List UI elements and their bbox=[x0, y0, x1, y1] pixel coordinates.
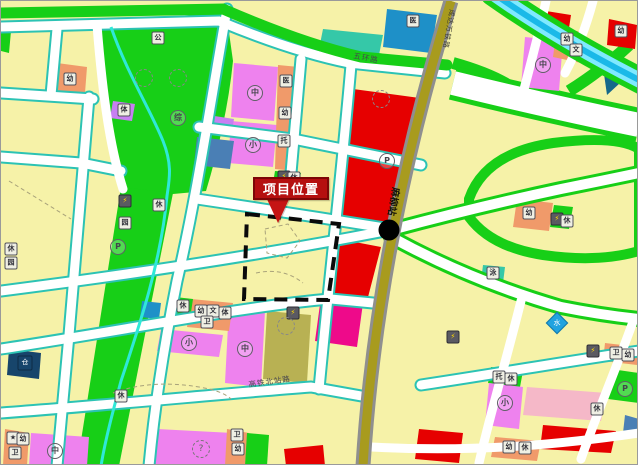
project-location-pointer-icon bbox=[266, 197, 290, 223]
purple-parcel bbox=[110, 101, 135, 121]
orange-parcel bbox=[3, 429, 29, 465]
map-canvas: 五环路 成达万铁路 高铁北站路 麻柳站 bbox=[1, 1, 638, 465]
green-sliver bbox=[245, 433, 269, 465]
project-location-callout: 项目位置 bbox=[253, 177, 329, 200]
blue-parcel bbox=[383, 9, 437, 53]
middle-school-parcel bbox=[231, 63, 278, 121]
khaki-parcel bbox=[263, 311, 311, 383]
middle-school-parcel bbox=[225, 307, 265, 387]
station-dot bbox=[379, 220, 400, 241]
pink-parcel bbox=[155, 429, 233, 465]
planning-map: 五环路 成达万铁路 高铁北站路 麻柳站 幼公体⚡休园综中小医幼托⚡休医PP幼文中… bbox=[0, 0, 638, 465]
green-sliver bbox=[550, 205, 573, 229]
